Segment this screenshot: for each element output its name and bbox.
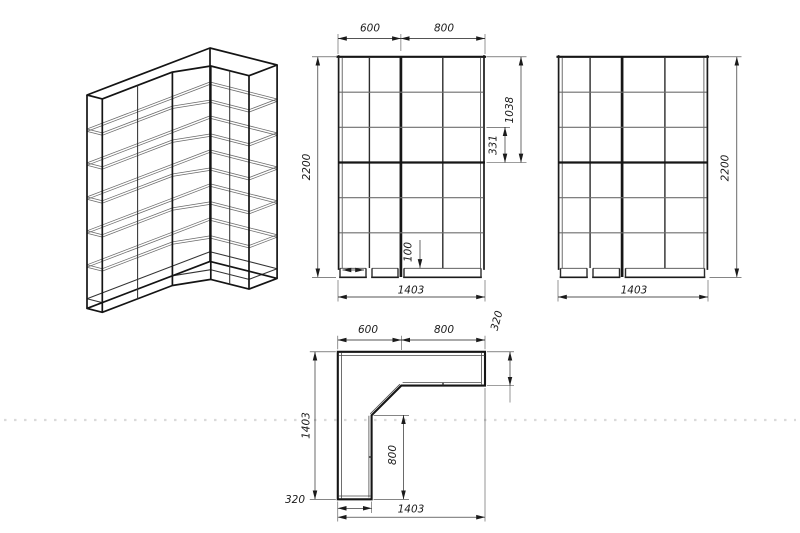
front-view: 600 800 2200 1038 331 100 1403	[301, 23, 527, 302]
plan-outline	[338, 352, 485, 500]
dim-plan-total-width: 1403	[398, 504, 425, 516]
dim-plan-depth-left: 320	[285, 494, 305, 506]
dim-front-top-section: 1038	[504, 96, 516, 123]
dim-side-total-width: 1403	[621, 285, 648, 297]
dim-plan-width-right: 800	[434, 324, 454, 336]
dim-front-width-left: 600	[360, 23, 380, 35]
dim-plan-width-left: 600	[358, 324, 378, 336]
dim-front-total-width: 1403	[398, 285, 425, 297]
dim-front-width-right: 800	[434, 23, 454, 35]
plan-view: 600 800 320 1403 800 320 1403	[285, 309, 514, 521]
dim-plan-inner-length: 800	[387, 445, 399, 465]
dim-side-height: 2200	[720, 154, 732, 181]
dim-plan-depth-right: 320	[489, 309, 506, 332]
side-view: 2200 1403	[558, 56, 742, 302]
dim-front-shelf-spacing: 331	[488, 135, 500, 155]
dim-plan-side-length: 1403	[301, 412, 313, 439]
dim-front-height: 2200	[301, 153, 313, 180]
drawing-sheet: 600 800 2200 1038 331 100 1403	[0, 0, 800, 533]
isometric-view	[87, 48, 277, 312]
technical-drawing: 600 800 2200 1038 331 100 1403	[0, 0, 800, 533]
dim-front-plinth: 100	[403, 242, 415, 262]
